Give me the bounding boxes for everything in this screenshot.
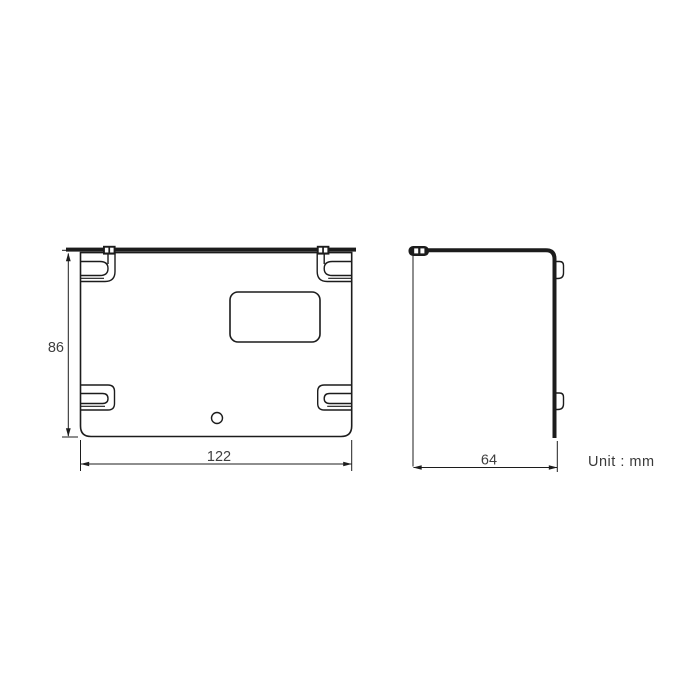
front-rect-opening [230,292,320,342]
dim-depth: 64 [413,441,558,472]
flange-clip-left [103,246,116,255]
dim-width: 122 [81,440,352,471]
bracket-drawing: 86 122 [0,0,700,700]
side-plate-profile [427,250,555,438]
dim-height-label: 86 [48,340,64,356]
side-clip-end [409,246,430,256]
mounting-slot-top-left [81,253,116,282]
unit-note: Unit : mm [588,454,655,470]
dim-width-label: 122 [207,449,231,465]
mounting-slot-bottom-right [318,385,352,410]
dim-height: 86 [48,250,78,437]
front-view [66,246,356,437]
side-hook-tab-bottom [557,393,564,410]
front-body-outline [81,253,352,437]
technical-drawing-canvas: 86 122 [0,0,700,700]
side-view [409,246,564,467]
flange-clip-right [317,246,330,255]
dim-depth-label: 64 [481,453,497,469]
mounting-slot-top-right [317,253,352,282]
side-hook-tab-top [557,262,564,279]
mounting-slot-bottom-left [81,385,115,410]
front-screw-hole [212,413,223,424]
